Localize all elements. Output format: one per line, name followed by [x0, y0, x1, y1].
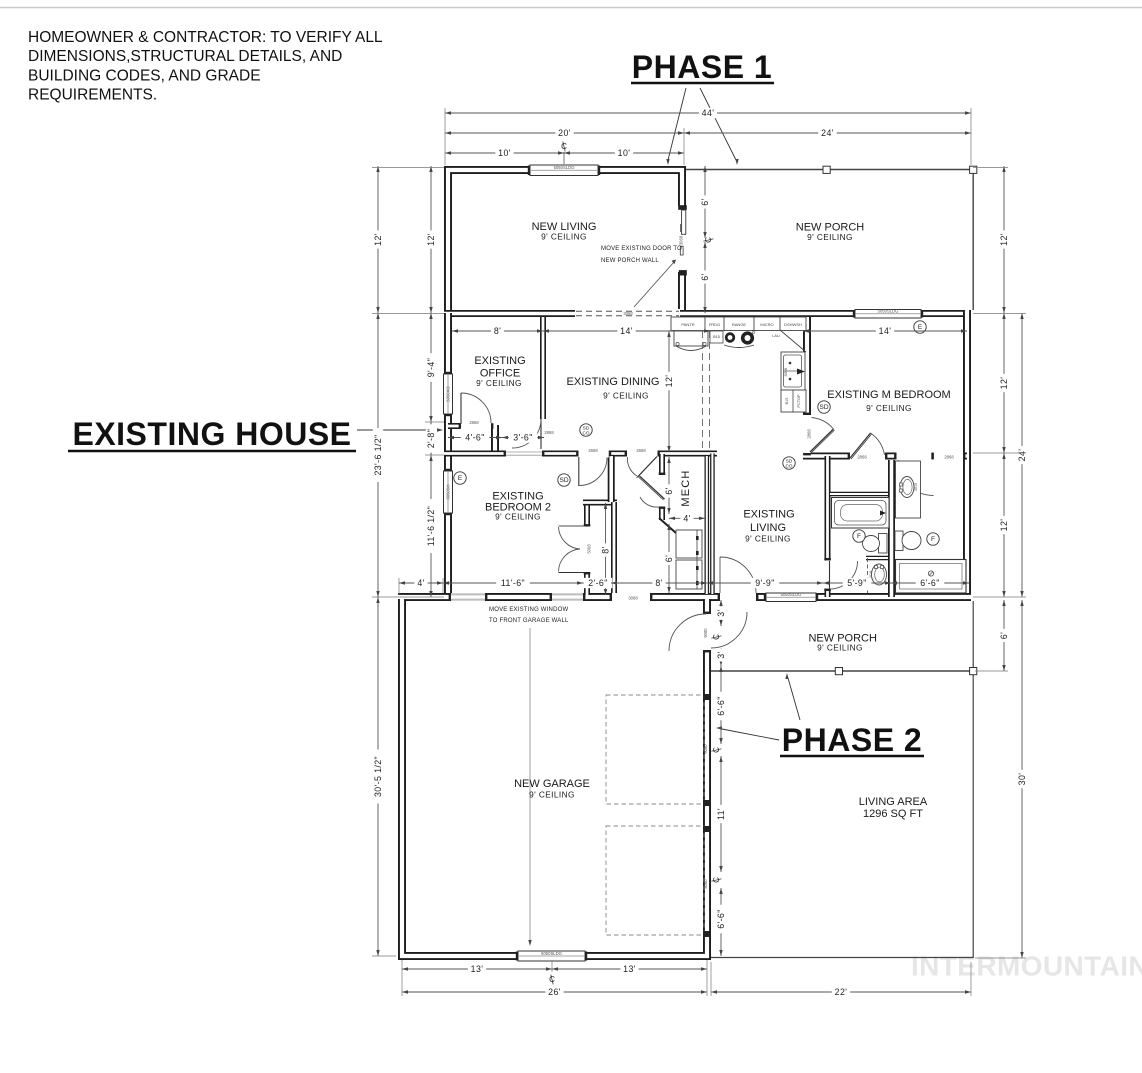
svg-text:4': 4': [417, 578, 424, 588]
svg-text:3': 3': [716, 609, 726, 616]
svg-text:2868: 2868: [857, 455, 867, 460]
svg-text:3068: 3068: [679, 235, 684, 245]
svg-text:RANGE: RANGE: [732, 322, 747, 327]
svg-text:5050SLDG: 5050SLDG: [554, 165, 575, 170]
svg-text:FRDG: FRDG: [709, 322, 720, 327]
svg-text:PCTOP: PCTOP: [797, 394, 801, 407]
svg-text:6': 6': [700, 198, 710, 205]
svg-text:6': 6': [664, 555, 674, 562]
svg-text:14': 14': [879, 326, 892, 336]
svg-text:9' CEILING: 9' CEILING: [495, 512, 541, 522]
svg-text:2868: 2868: [469, 420, 479, 425]
svg-text:5050XO: 5050XO: [445, 386, 450, 402]
svg-text:8': 8': [752, 330, 756, 336]
svg-text:11'-6 1/2": 11'-6 1/2": [426, 506, 436, 546]
svg-text:24': 24': [821, 128, 834, 138]
svg-text:9' CEILING: 9' CEILING: [529, 790, 575, 800]
svg-text:SINK: SINK: [784, 367, 788, 376]
svg-text:6': 6': [700, 273, 710, 280]
svg-text:8': 8': [601, 546, 611, 553]
svg-text:5050SLDG: 5050SLDG: [878, 309, 899, 314]
svg-text:3068: 3068: [623, 311, 633, 316]
svg-text:26': 26': [548, 987, 561, 997]
svg-text:LIVING: LIVING: [750, 522, 786, 534]
svg-text:2868: 2868: [636, 448, 646, 453]
svg-text:9'-4": 9'-4": [426, 358, 436, 378]
svg-text:DIMENSIONS,STRUCTURAL DETAILS,: DIMENSIONS,STRUCTURAL DETAILS, AND: [28, 48, 342, 65]
svg-text:6'-6": 6'-6": [920, 578, 940, 588]
svg-text:NEW PORCH WALL: NEW PORCH WALL: [601, 258, 659, 264]
svg-text:INTERMOUNTAIN: INTERMOUNTAIN: [911, 951, 1142, 982]
svg-text:12': 12': [999, 377, 1009, 390]
svg-text:5050SLDG: 5050SLDG: [541, 951, 562, 956]
svg-text:9' CEILING: 9' CEILING: [476, 378, 522, 388]
svg-text:SD: SD: [819, 404, 828, 411]
svg-text:2868: 2868: [944, 455, 954, 460]
svg-text:HOMEOWNER & CONTRACTOR: TO VER: HOMEOWNER & CONTRACTOR: TO VERIFY ALL: [28, 29, 383, 46]
svg-text:NEW GARAGE: NEW GARAGE: [514, 778, 590, 790]
svg-text:11': 11': [716, 808, 726, 820]
svg-text:3050SH: 3050SH: [445, 484, 450, 499]
svg-text:PHASE 2: PHASE 2: [782, 722, 922, 758]
svg-text:5050SLDG: 5050SLDG: [781, 592, 802, 597]
svg-text:6'-6": 6'-6": [716, 909, 726, 929]
svg-text:2868: 2868: [807, 429, 812, 439]
svg-text:CO: CO: [786, 463, 793, 468]
svg-text:PHASE 1: PHASE 1: [632, 49, 772, 85]
svg-text:14': 14': [620, 326, 633, 336]
svg-text:EXISTING HOUSE: EXISTING HOUSE: [72, 416, 351, 452]
svg-text:10': 10': [618, 148, 631, 158]
svg-text:E: E: [918, 324, 923, 331]
svg-text:LIVING AREA: LIVING AREA: [859, 796, 928, 808]
svg-text:B15: B15: [785, 398, 789, 405]
svg-text:5'-9": 5'-9": [847, 578, 867, 588]
svg-text:EXISTING: EXISTING: [743, 509, 794, 521]
svg-text:22': 22': [835, 987, 848, 997]
svg-text:9080: 9080: [703, 879, 708, 889]
svg-text:3': 3': [716, 651, 726, 658]
svg-text:2868: 2868: [544, 430, 554, 435]
svg-text:10': 10': [498, 148, 511, 158]
svg-text:12': 12': [999, 233, 1009, 246]
svg-text:CO: CO: [583, 430, 590, 435]
svg-text:EXISTING M BEDROOM: EXISTING M BEDROOM: [827, 389, 950, 401]
svg-text:9' CEILING: 9' CEILING: [866, 403, 912, 413]
svg-text:12': 12': [373, 233, 383, 246]
svg-text:30'-5 1/2": 30'-5 1/2": [373, 756, 383, 797]
svg-text:9' CEILING: 9' CEILING: [745, 534, 791, 544]
svg-text:6': 6': [999, 632, 1009, 639]
svg-text:3068: 3068: [628, 596, 638, 601]
svg-text:MOVE EXISTING DOOR TO: MOVE EXISTING DOOR TO: [601, 246, 682, 252]
svg-text:44': 44': [702, 108, 715, 118]
svg-text:9' CEILING: 9' CEILING: [603, 391, 649, 401]
svg-text:2868: 2868: [588, 448, 598, 453]
svg-text:TO FRONT GARAGE WALL: TO FRONT GARAGE WALL: [489, 618, 569, 624]
svg-text:24': 24': [1017, 449, 1027, 462]
svg-text:2'-6": 2'-6": [588, 578, 608, 588]
svg-text:1296 SQ FT: 1296 SQ FT: [863, 808, 923, 820]
svg-text:BUILDING CODES, AND GRADE: BUILDING CODES, AND GRADE: [28, 67, 261, 84]
svg-text:4'-6": 4'-6": [465, 433, 485, 443]
svg-text:EXISTING: EXISTING: [474, 355, 525, 367]
svg-text:4': 4': [683, 514, 690, 524]
svg-text:9' CEILING: 9' CEILING: [807, 232, 853, 242]
svg-text:8': 8': [655, 578, 662, 588]
svg-text:3019: 3019: [914, 483, 918, 491]
svg-text:6': 6': [664, 487, 674, 494]
svg-text:E: E: [458, 475, 463, 482]
svg-text:6'-6": 6'-6": [716, 696, 726, 716]
svg-text:13': 13': [623, 964, 636, 974]
svg-text:2'-8": 2'-8": [426, 429, 436, 449]
svg-text:9080: 9080: [703, 628, 708, 638]
svg-text:DSHWSH: DSHWSH: [784, 322, 802, 327]
svg-text:MICRO: MICRO: [760, 322, 773, 327]
svg-text:9080: 9080: [703, 744, 708, 754]
svg-text:EXISTING DINING: EXISTING DINING: [567, 376, 660, 388]
svg-text:MECH: MECH: [680, 469, 692, 506]
svg-text:LAU: LAU: [772, 334, 780, 338]
svg-text:9' CEILING: 9' CEILING: [541, 232, 587, 242]
svg-text:SD: SD: [559, 477, 568, 484]
svg-text:MOVE EXISTING WINDOW: MOVE EXISTING WINDOW: [489, 607, 568, 613]
svg-text:B15: B15: [713, 335, 720, 339]
svg-text:5068: 5068: [587, 544, 592, 554]
svg-text:23'-6 1/2": 23'-6 1/2": [373, 434, 383, 475]
svg-text:12': 12': [426, 233, 436, 246]
svg-text:F: F: [931, 536, 935, 543]
svg-text:9' CEILING: 9' CEILING: [817, 642, 863, 652]
svg-text:12': 12': [999, 519, 1009, 532]
svg-text:3'-6": 3'-6": [513, 433, 533, 443]
svg-text:30': 30': [1017, 773, 1027, 786]
svg-text:9'-9": 9'-9": [755, 578, 775, 588]
svg-text:12': 12': [664, 375, 674, 388]
svg-text:13': 13': [471, 964, 484, 974]
svg-text:PANTR: PANTR: [681, 322, 694, 327]
svg-text:20': 20': [558, 128, 571, 138]
svg-text:11'-6": 11'-6": [501, 578, 525, 588]
svg-text:REQUIREMENTS.: REQUIREMENTS.: [28, 87, 157, 104]
svg-text:8': 8': [494, 326, 501, 336]
svg-text:F: F: [857, 533, 861, 540]
